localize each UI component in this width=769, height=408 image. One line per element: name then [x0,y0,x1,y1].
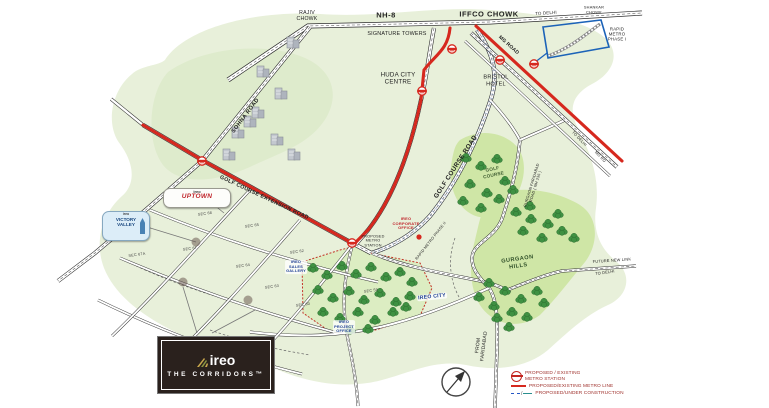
legend-item-under-construction: / PROPOSED/UNDER CONSTRUCTION [511,391,711,397]
red-line-swatch [511,385,526,387]
map-label-rajiv: RAJIV CHOWK [297,10,318,22]
legend: PROPOSED / EXISTING METRO STATION PROPOS… [511,371,711,398]
logo-brand-row: ireo [197,353,236,367]
leaf-icon [197,357,208,367]
site-smudge [179,278,188,287]
site-smudge [244,296,253,305]
map-label-signature-towers: SIGNATURE TOWERS [367,31,426,37]
blue-dashed-swatch [511,393,520,394]
legend-item-station: PROPOSED / EXISTING METRO STATION [511,371,711,382]
metro-station-icon [511,371,522,382]
logo-tagline: THE CORRIDORS™ [167,371,264,378]
teal-line-swatch [523,393,532,395]
compass-north-arrow [442,368,470,396]
legend-label: PROPOSED/EXISTING METRO LINE [529,384,613,390]
ireo-corridors-logo[interactable]: ireo THE CORRIDORS™ [157,336,275,394]
map-label-ireo: IREO CORPORATE OFFICE [392,217,419,231]
map-label-nh-8: NH-8 [376,12,396,21]
corporate-office-dot [416,234,421,239]
callout-ireo-victory-valley[interactable]: ireo VICTORY VALLEY [102,211,150,241]
site-map: RAJIV CHOWKNH-8SIGNATURE TOWERSIFFCO CHO… [0,0,769,408]
metro-station-icon [495,56,505,64]
legend-item-metro-line: PROPOSED/EXISTING METRO LINE [511,384,711,390]
legend-label: PROPOSED/UNDER CONSTRUCTION [535,391,623,397]
logo-brand-text: ireo [210,353,236,367]
project-name: UPTOWN [164,194,230,201]
metro-station-icon [197,157,207,165]
map-label-huda-city: HUDA CITY CENTRE [381,72,416,87]
metro-station-icon [347,239,357,247]
map-label-bristol: BRISTOL HOTEL [483,74,508,87]
map-label-rapid: RAPID METRO PHASE I [608,26,626,41]
callout-ireo-uptown[interactable]: ireo UPTOWN [163,188,231,208]
map-label-iffco-chowk: IFFCO CHOWK [459,11,518,20]
map-label-shankar: SHANKAR CHOWK [584,5,604,14]
map-label-ireo: IREO PROJECT OFFICE [333,320,355,334]
legend-label: PROPOSED / EXISTING METRO STATION [525,371,580,382]
metro-station-icon [447,45,457,53]
map-label-proposed: PROPOSED METRO STATION [361,234,384,247]
slash-separator: / [521,391,522,397]
metro-station-icon [417,87,427,95]
map-canvas [0,0,769,408]
metro-station-icon [529,60,539,68]
map-label-ireo: IREO SALES GALLERY [285,260,307,274]
